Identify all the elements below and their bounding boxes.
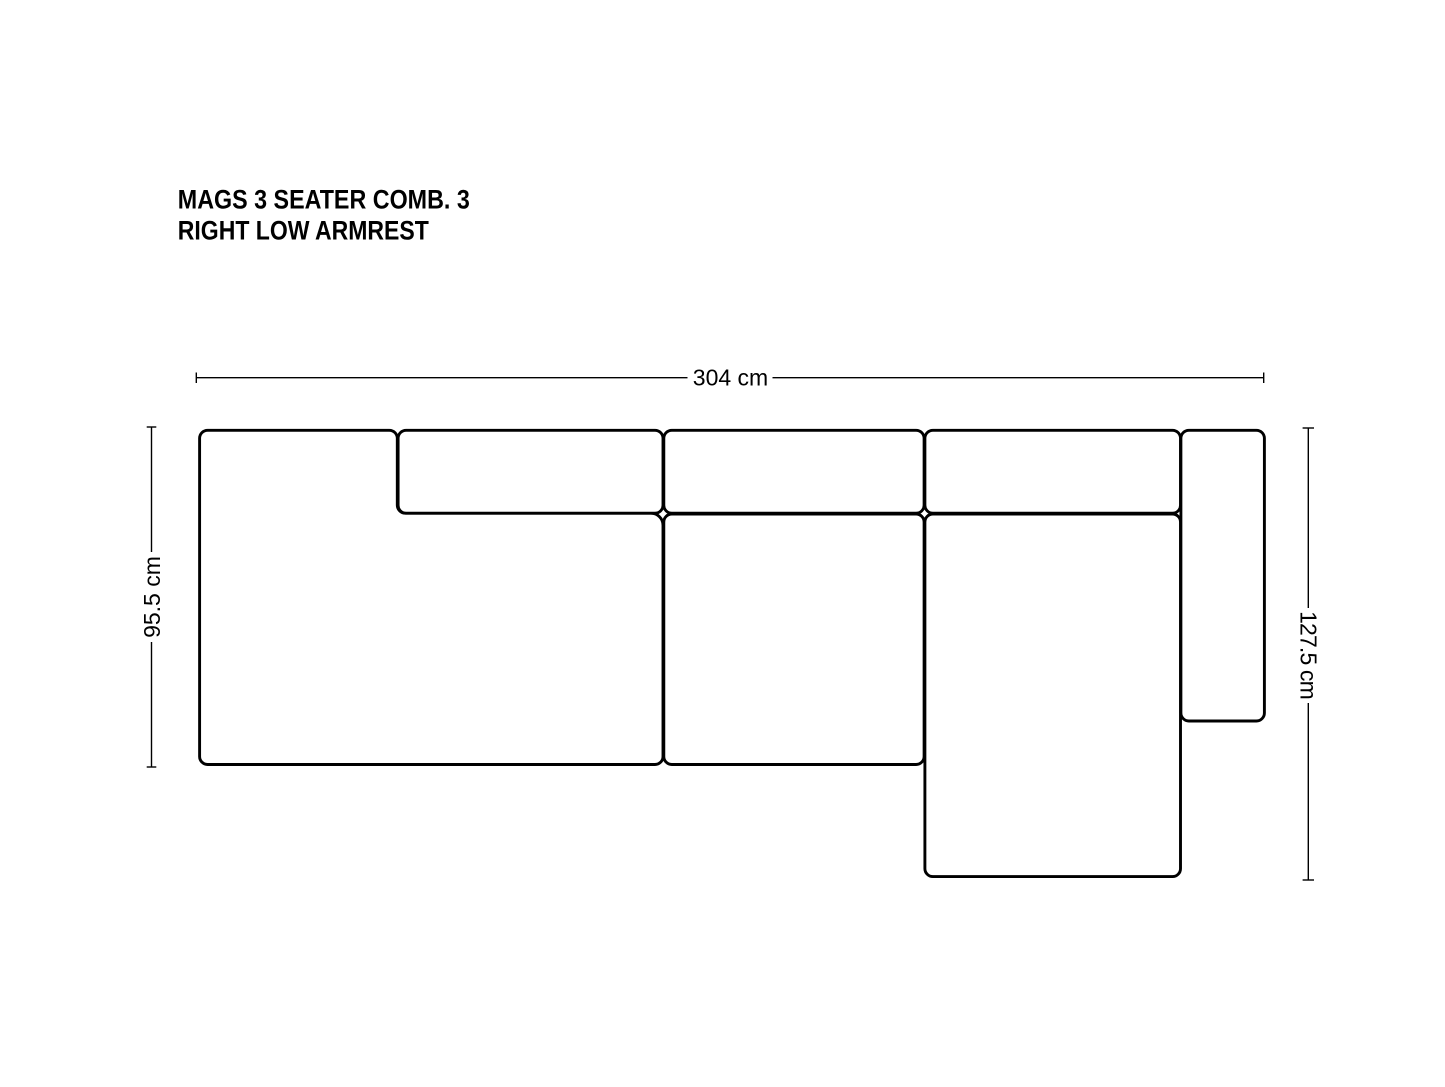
svg-text:304 cm: 304 cm <box>693 365 768 391</box>
svg-text:RIGHT LOW ARMREST: RIGHT LOW ARMREST <box>178 216 429 246</box>
svg-text:127.5 cm: 127.5 cm <box>1295 611 1321 699</box>
svg-text:MAGS 3 SEATER COMB. 3: MAGS 3 SEATER COMB. 3 <box>178 185 470 215</box>
svg-text:95.5 cm: 95.5 cm <box>139 556 165 638</box>
